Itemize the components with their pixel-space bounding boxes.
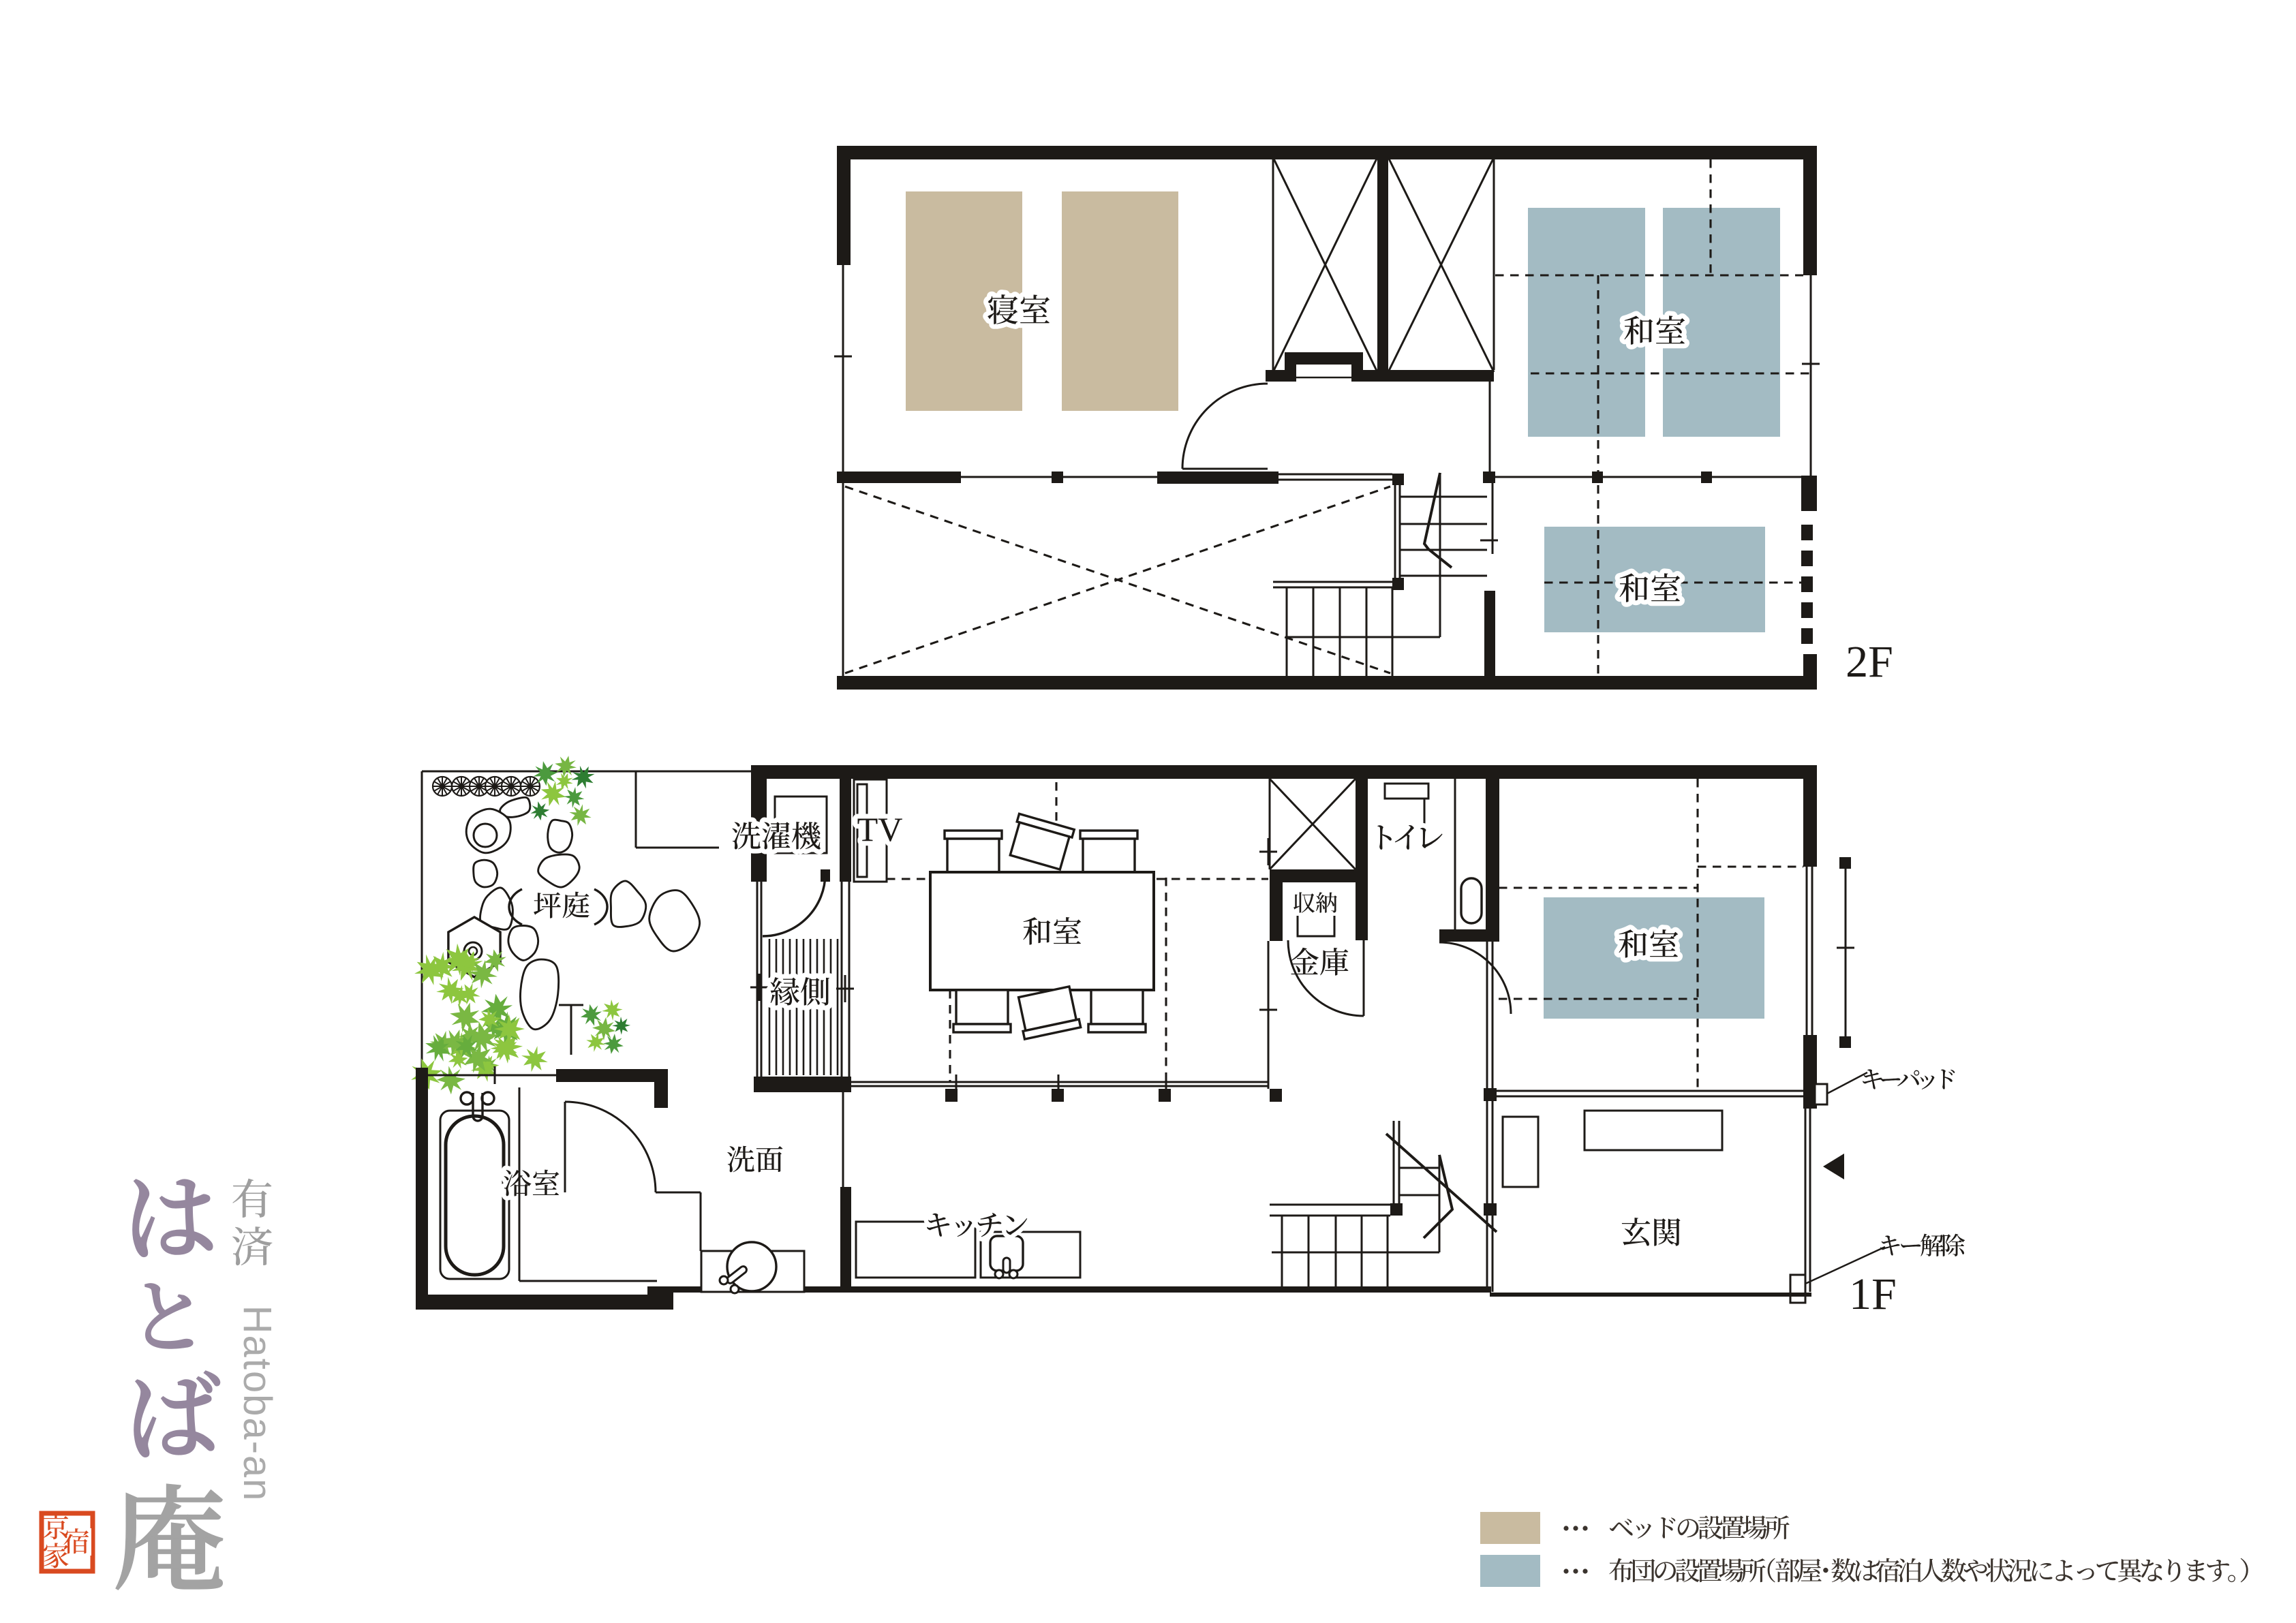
svg-text:Hatoba-an: Hatoba-an [235,1305,279,1502]
svg-text:TV: TV [857,810,903,848]
svg-text:2F: 2F [1846,637,1893,687]
svg-text:1F: 1F [1849,1269,1897,1319]
